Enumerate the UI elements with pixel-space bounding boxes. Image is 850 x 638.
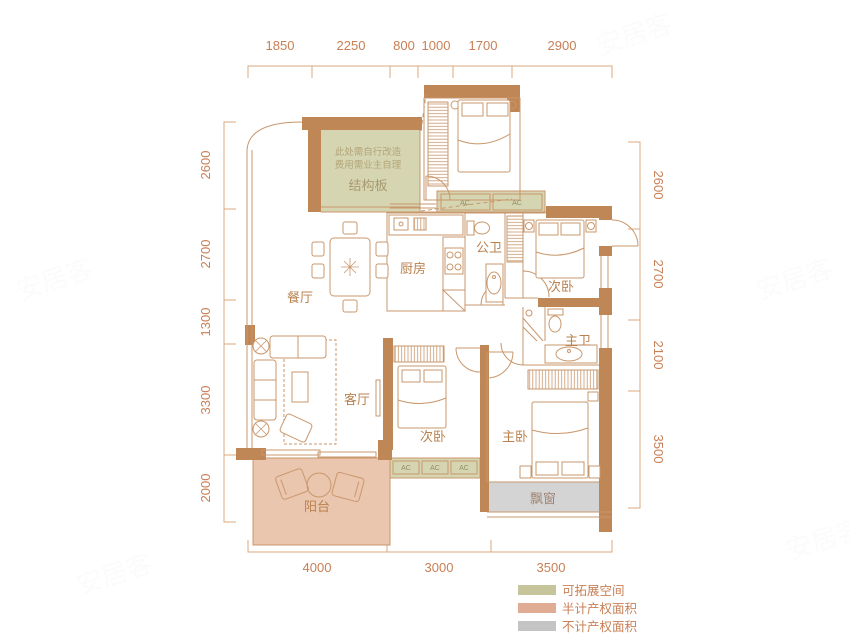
- public-bath-fixtures: [467, 216, 523, 302]
- chair: [376, 264, 388, 278]
- dim-top-3: 1000: [422, 38, 451, 53]
- watermark-text: 安居客: [13, 253, 96, 306]
- room-label-dining: 餐厅: [287, 290, 313, 305]
- pillow: [402, 370, 420, 382]
- tv: [376, 380, 380, 416]
- dim-top-1: 2250: [337, 38, 366, 53]
- shower: [523, 318, 543, 341]
- dim-right-2: 2100: [651, 341, 666, 370]
- room-label-bedroom-top: 次卧: [548, 279, 574, 294]
- wall: [599, 246, 612, 256]
- detail-room-furniture: [428, 100, 516, 186]
- master-bedroom-furniture: [520, 370, 600, 478]
- stove: [445, 248, 463, 274]
- sliding-door: [318, 452, 376, 457]
- dim-left-4: 2000: [198, 474, 213, 503]
- ac-label: AC: [512, 200, 522, 207]
- curved-window: [247, 122, 302, 152]
- room-label-master-bath: 主卫: [565, 333, 591, 348]
- chair: [343, 300, 357, 312]
- legend-swatch-excluded-area: [518, 621, 556, 631]
- pillow: [561, 223, 580, 235]
- watermark-text: 安居客: [593, 8, 676, 61]
- watermark-text: 安居客: [783, 513, 850, 566]
- legend-label-excluded-area: 不计产权面积: [562, 619, 637, 634]
- room-label-kitchen: 厨房: [400, 261, 426, 276]
- ac-label: AC: [460, 200, 470, 207]
- closet: [507, 216, 523, 262]
- dim-right-3: 3500: [651, 435, 666, 464]
- living-room-furniture: [253, 336, 380, 444]
- floorplan-svg: 安居客 安居客 安居客 安居客 安居客 1850 2250 800 1000 1…: [0, 0, 850, 638]
- dim-top-4: 1700: [469, 38, 498, 53]
- ac-label: AC: [459, 465, 469, 472]
- armchair: [279, 413, 313, 443]
- wall: [378, 440, 392, 460]
- room-label-bay-window: 飘窗: [530, 491, 556, 506]
- structure-note-2: 费用需业主自理: [335, 159, 402, 171]
- room-label-bedroom-mid: 次卧: [420, 429, 446, 444]
- chair: [376, 242, 388, 256]
- pillow: [539, 223, 558, 235]
- ac-label: AC: [401, 465, 411, 472]
- nightstand: [520, 466, 531, 478]
- wall: [599, 206, 612, 220]
- wall: [480, 345, 489, 512]
- room-label-structure-slab: 结构板: [348, 178, 387, 193]
- dresser: [588, 392, 598, 401]
- ac-label: AC: [430, 465, 440, 472]
- dim-left-3: 3300: [198, 386, 213, 415]
- wall: [599, 348, 612, 532]
- structure-slab-area: [321, 130, 420, 212]
- room-label-master-bedroom: 主卧: [502, 429, 528, 444]
- chair: [343, 222, 357, 234]
- chair: [312, 242, 324, 256]
- dim-bottom-1: 3000: [425, 560, 454, 575]
- entry-door-arc: [612, 220, 638, 246]
- wall: [424, 85, 520, 98]
- legend-swatch-expandable: [518, 585, 556, 595]
- dim-right-0: 2600: [651, 171, 666, 200]
- dim-left-2: 1300: [198, 308, 213, 337]
- dim-bottom-2: 3500: [537, 560, 566, 575]
- pillow: [462, 103, 483, 116]
- dim-left-0: 2600: [198, 151, 213, 180]
- bedroom-top-furniture: [524, 220, 596, 278]
- wall: [546, 206, 602, 218]
- kitchen-sink: [394, 218, 408, 230]
- coffee-table: [292, 372, 308, 402]
- dim-top-5: 2900: [548, 38, 577, 53]
- door-arc: [487, 352, 513, 378]
- door-arc: [456, 348, 480, 372]
- wardrobe: [394, 346, 444, 362]
- dim-bottom-0: 4000: [303, 560, 332, 575]
- sliding-door: [262, 450, 320, 455]
- chair: [312, 264, 324, 278]
- sofa: [254, 360, 276, 420]
- pillow: [536, 462, 558, 475]
- floorplan-canvas: 安居客 安居客 安居客 安居客 安居客 1850 2250 800 1000 1…: [0, 0, 850, 638]
- pillow: [424, 370, 442, 382]
- room-label-living: 客厅: [344, 392, 370, 407]
- wardrobe: [528, 370, 598, 389]
- legend-label-half-area: 半计产权面积: [562, 601, 637, 616]
- legend-label-expandable: 可拓展空间: [562, 584, 625, 598]
- dim-left-1: 2700: [198, 240, 213, 269]
- room-label-balcony: 阳台: [304, 499, 330, 514]
- bedroom-mid-furniture: [394, 346, 446, 428]
- dim-top-0: 1850: [266, 38, 295, 53]
- legend: 可拓展空间 半计产权面积 不计产权面积: [518, 584, 637, 634]
- toilet: [548, 309, 563, 315]
- watermark-text: 安居客: [73, 548, 156, 601]
- legend-swatch-half-area: [518, 603, 556, 613]
- pillow: [487, 103, 508, 116]
- wall: [383, 338, 393, 450]
- dim-top-2: 800: [393, 38, 415, 53]
- watermark-text: 安居客: [753, 253, 836, 306]
- room-label-public-bath: 公卫: [476, 240, 502, 255]
- structure-note-1: 此处需自行改造: [335, 146, 402, 158]
- dim-right-1: 2700: [651, 260, 666, 289]
- wall: [308, 117, 321, 212]
- nightstand: [589, 466, 600, 478]
- toilet: [467, 221, 474, 235]
- door-arc: [501, 343, 523, 365]
- wall: [538, 298, 602, 307]
- wardrobe: [428, 102, 448, 186]
- dining-table: [312, 222, 388, 312]
- pillow: [562, 462, 584, 475]
